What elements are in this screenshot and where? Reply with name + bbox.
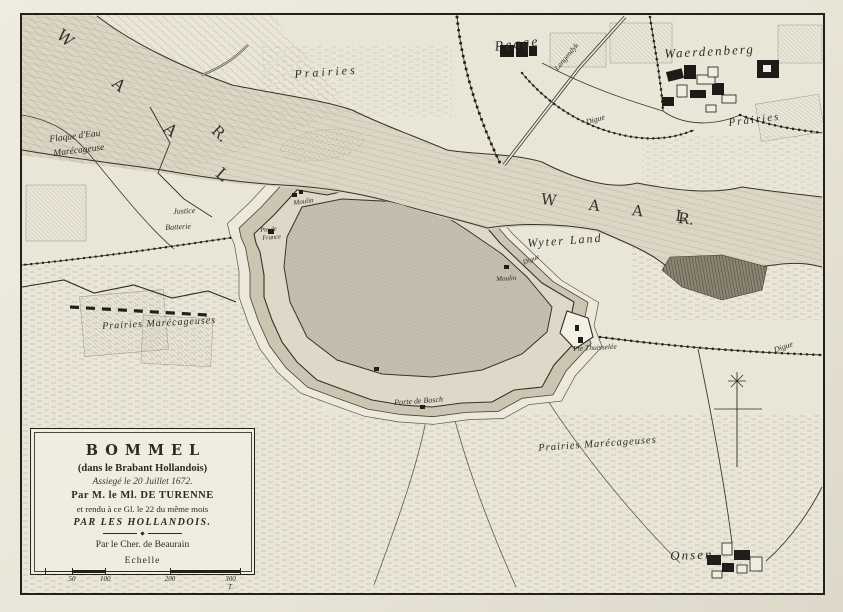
hornwork-building [575, 325, 579, 331]
label-porte-thuisselee: Pte Thuisselée [573, 343, 617, 353]
siege-date-line: Assiegé le 20 Juillet 1672. [93, 477, 193, 487]
moulin-west-building [299, 190, 303, 194]
title-cartouche: BOMMEL (dans le Brabant Hollandois) Assi… [30, 428, 255, 575]
surrender-line: et rendu à ce Gl. le 22 du même mois [77, 504, 208, 514]
besieger-line: Par M. le Ml. DE TURENNE [71, 490, 214, 501]
map-plate: W A A L R. Prairies Peage Langendyk Digu… [20, 13, 825, 595]
cartouche-inner-border: BOMMEL (dans le Brabant Hollandois) Assi… [34, 432, 252, 572]
label-justice: Justice [173, 207, 196, 216]
scale-tick-50: 50 [68, 575, 75, 583]
label-waal-river-mid-r: R. [677, 211, 695, 228]
scale-bar: 50 100 200 300 T. [45, 567, 241, 571]
moulin-west-building [292, 193, 297, 197]
label-batterie: Batterie [165, 223, 191, 232]
scale-tick-100: 100 [100, 575, 111, 583]
scale-title: Echelle [125, 555, 161, 566]
cartouche-ornament [103, 532, 182, 535]
scale-tick-200: 200 [165, 575, 176, 583]
author-line: Par le Cher. de Beaurain [96, 539, 190, 550]
moulin-east-building [504, 265, 509, 269]
map-subtitle: (dans le Brabant Hollandois) [78, 463, 207, 474]
hollandois-line: PAR LES HOLLANDOIS. [73, 517, 211, 528]
engraved-map-sheet: W A A L R. Prairies Peage Langendyk Digu… [0, 0, 843, 612]
porte-de-bosch-gate [420, 405, 425, 409]
porte-thuisselee-gate [578, 337, 583, 343]
scale-tick-300: 300 T. [225, 575, 236, 591]
label-moulin-east: Moulin [496, 275, 517, 283]
south-bastion-building [374, 367, 379, 371]
map-title: BOMMEL [79, 442, 207, 459]
label-onsen: Onsen [670, 547, 714, 562]
